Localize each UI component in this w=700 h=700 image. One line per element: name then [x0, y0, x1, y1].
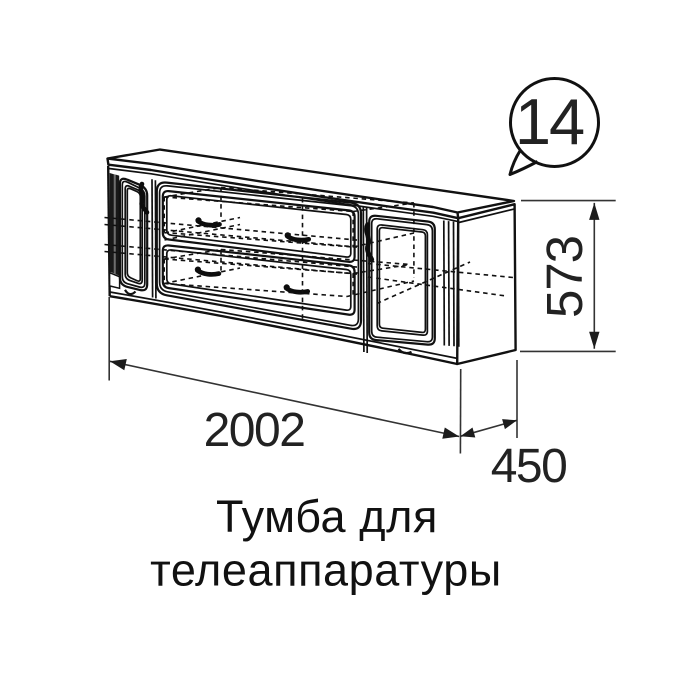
svg-text:14: 14: [515, 85, 584, 158]
svg-text:телеаппаратуры: телеаппаратуры: [150, 545, 502, 596]
svg-text:450: 450: [491, 440, 567, 493]
svg-text:Тумба для: Тумба для: [216, 491, 438, 542]
svg-text:573: 573: [536, 236, 593, 318]
svg-text:2002: 2002: [204, 404, 305, 457]
